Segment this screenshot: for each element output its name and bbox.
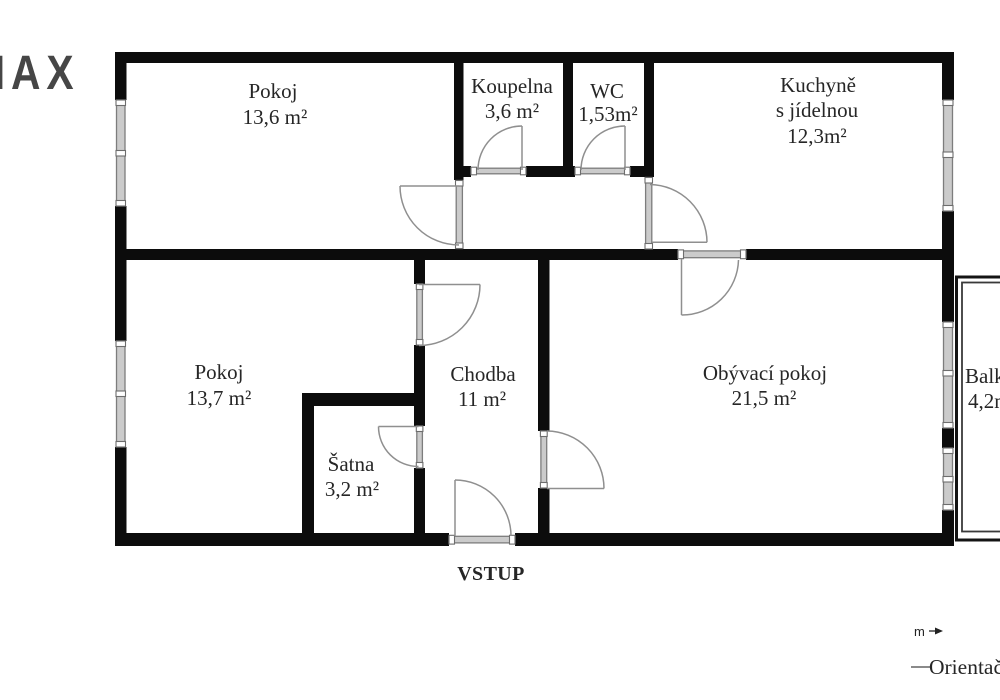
svg-text:m: m [914,624,925,639]
svg-text:MAX: MAX [0,47,80,100]
svg-text:13,6 m²: 13,6 m² [243,105,308,129]
svg-text:WC: WC [590,79,624,103]
svg-text:Pokoj: Pokoj [248,79,297,103]
svg-text:3,6 m²: 3,6 m² [485,99,539,123]
svg-text:3,2 m²: 3,2 m² [325,477,379,501]
svg-text:Koupelna: Koupelna [471,74,553,98]
svg-text:13,7 m²: 13,7 m² [187,386,252,410]
svg-text:Chodba: Chodba [450,362,516,386]
svg-text:s jídelnou: s jídelnou [776,98,859,122]
svg-text:21,5 m²: 21,5 m² [732,386,797,410]
svg-text:Šatna: Šatna [328,452,375,476]
svg-text:Orientačn: Orientačn [929,655,1000,679]
svg-text:Kuchyně: Kuchyně [780,73,856,97]
svg-text:Pokoj: Pokoj [194,360,243,384]
svg-text:Balkón: Balkón [965,364,1000,388]
svg-text:12,3m²: 12,3m² [787,124,846,148]
svg-text:1,53m²: 1,53m² [578,102,637,126]
svg-text:11 m²: 11 m² [458,387,506,411]
svg-text:VSTUP: VSTUP [457,563,525,585]
svg-text:Obývací pokoj: Obývací pokoj [703,361,827,385]
svg-text:4,2m²: 4,2m² [968,389,1000,413]
